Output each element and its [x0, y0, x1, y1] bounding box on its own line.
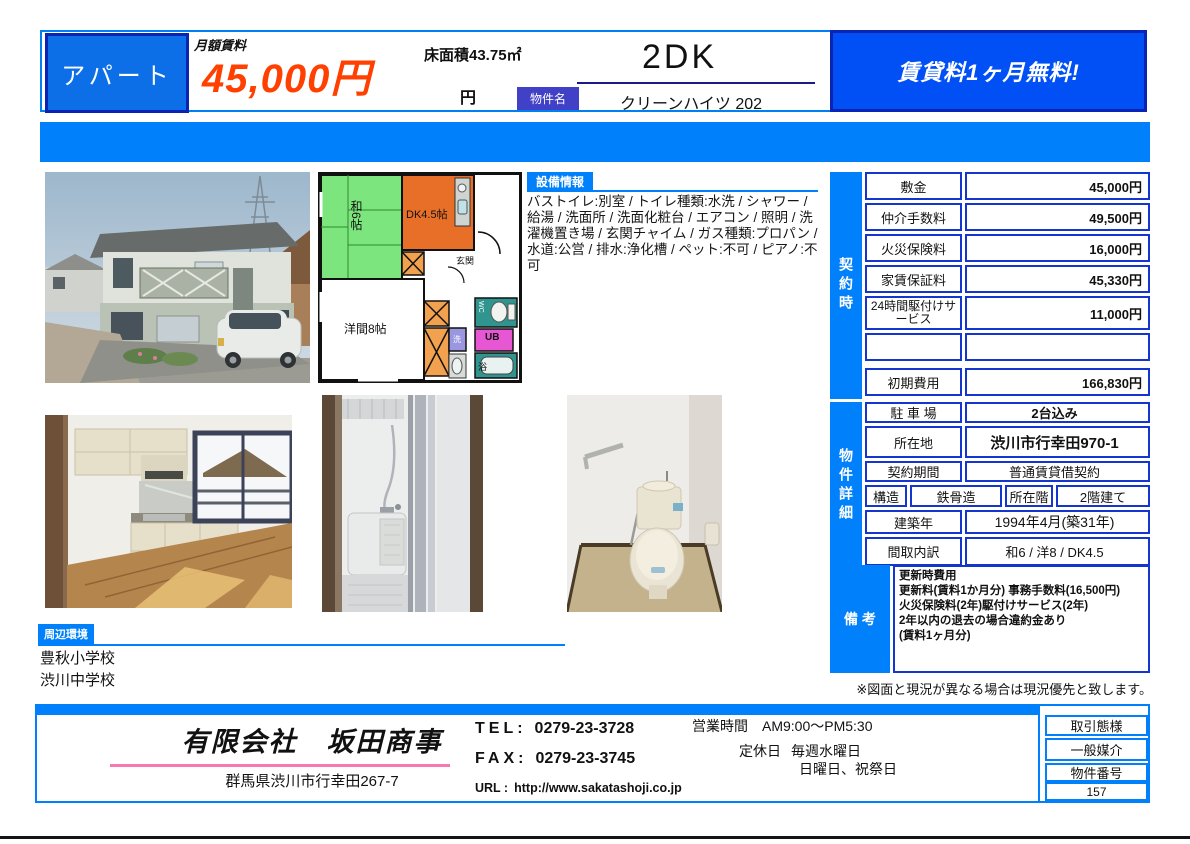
surroundings-tab: 周辺環境: [38, 624, 94, 644]
row-label: 初期費用: [865, 368, 962, 396]
table-row: 構造 鉄骨造 所在階 2階建て: [865, 485, 1150, 507]
bottom-rule: [0, 836, 1190, 839]
url-value: http://www.sakatashoji.co.jp: [514, 781, 682, 795]
row-value: 11,000円: [965, 296, 1150, 330]
header-underline: [577, 82, 815, 84]
url-label: URL :: [475, 781, 508, 795]
surroundings-tab-line: [38, 644, 565, 646]
room-label-western: 洋間8帖: [344, 320, 387, 337]
remarks-line: 2年以内の退去の場合違約金あり: [899, 614, 1144, 629]
blue-divider-bar: [40, 122, 1150, 162]
company-address: 群馬県渋川市行幸田267-7: [117, 770, 507, 791]
property-flyer: アパート 月額賃料 45,000円 床面積43.75㎡ 円 2DK 物件名 クリ…: [0, 0, 1190, 844]
property-number-label: 物件番号: [1045, 763, 1148, 782]
surroundings-list: 豊秋小学校 渋川中学校: [40, 648, 115, 692]
holiday-line2: 日曜日、祝祭日: [799, 759, 897, 779]
row-value: 49,500円: [965, 203, 1150, 231]
row-label: 家賃保証料: [865, 265, 962, 293]
row-value: [965, 333, 1150, 361]
row-value: 2階建て: [1056, 485, 1150, 507]
table-row: [865, 333, 1150, 361]
row-label: 仲介手数料: [865, 203, 962, 231]
table-row: 初期費用 166,830円: [865, 368, 1150, 396]
table-row: 24時間駆付けサービス 11,000円: [865, 296, 1150, 330]
floor-area: 床面積43.75㎡: [424, 44, 522, 65]
row-label: 建築年: [865, 510, 962, 534]
room-label-tatami: 和6帖: [348, 200, 365, 231]
property-type-badge: アパート: [45, 33, 189, 113]
room-label-laundry: 洗: [453, 334, 461, 345]
tel-value: 0279-23-3728: [535, 720, 635, 737]
property-number-value: 157: [1045, 782, 1148, 801]
deal-type-value: 一般媒介: [1045, 738, 1148, 761]
table-row: 所在地 渋川市行幸田970-1: [865, 426, 1150, 458]
room-label-wc: WC: [477, 301, 484, 313]
row-value: 45,330円: [965, 265, 1150, 293]
row-label: 所在階: [1005, 485, 1053, 507]
contract-side-label: 契約時: [830, 172, 862, 399]
footer-top-bar: [37, 706, 1038, 715]
holiday-line1: 定休日毎週水曜日: [739, 741, 861, 761]
footer: 有限会社 坂田商事 群馬県渋川市行幸田267-7 TEL:0279-23-372…: [35, 704, 1150, 803]
table-row: 仲介手数料 49,500円: [865, 203, 1150, 231]
fax-value: 0279-23-3745: [535, 750, 635, 767]
equipment-tab: 設備情報: [527, 172, 593, 191]
list-item: 豊秋小学校: [40, 648, 115, 670]
row-value: 和6 / 洋8 / DK4.5: [965, 537, 1150, 566]
row-value: 渋川市行幸田970-1: [965, 426, 1150, 458]
room-label-ub: UB: [485, 332, 499, 343]
table-row: 駐 車 場 2台込み: [865, 402, 1150, 423]
row-value: 鉄骨造: [910, 485, 1002, 507]
room-label-bath: 浴: [478, 360, 487, 373]
room-label-dk: DK4.5帖: [406, 206, 448, 222]
row-value: 45,000円: [965, 172, 1150, 200]
floor-plan: 和6帖 DK4.5帖 洋間8帖 玄関 WC UB 浴 洗: [318, 172, 522, 383]
hours-label: 営業時間: [692, 718, 748, 734]
building-photo: [45, 172, 310, 383]
yen-label: 円: [460, 84, 476, 108]
tel-label: TEL:: [475, 720, 527, 737]
promo-banner: 賃貸料1ヶ月無料!: [830, 30, 1147, 112]
company-underline: [110, 764, 450, 767]
remarks-side-label: 備 考: [830, 565, 890, 673]
table-row: 家賃保証料 45,330円: [865, 265, 1150, 293]
table-row: 火災保険料 16,000円: [865, 234, 1150, 262]
remarks-line: (賃料1ヶ月分): [899, 629, 1144, 644]
row-value: 1994年4月(築31年): [965, 510, 1150, 534]
remarks-line: 火災保険料(2年)駆付けサービス(2年): [899, 599, 1144, 614]
row-label: 敷金: [865, 172, 962, 200]
website-url: URL :http://www.sakatashoji.co.jp: [475, 781, 682, 795]
layout-type: 2DK: [642, 38, 717, 77]
row-label: 火災保険料: [865, 234, 962, 262]
row-value: 普通賃貸借契約: [965, 461, 1150, 482]
list-item: 渋川中学校: [40, 670, 115, 692]
row-label: [865, 333, 962, 361]
remarks-line: 更新料(賃料1か月分) 事務手数料(16,500円): [899, 584, 1144, 599]
company-name: 有限会社 坂田商事: [117, 720, 507, 759]
table-row: 間取内訳 和6 / 洋8 / DK4.5: [865, 537, 1150, 566]
building-photo-image: [45, 172, 310, 383]
row-label: 所在地: [865, 426, 962, 458]
remarks-line: 更新時費用: [899, 569, 1144, 584]
row-label: 間取内訳: [865, 537, 962, 566]
table-row: 契約期間 普通賃貸借契約: [865, 461, 1150, 482]
row-label: 構造: [865, 485, 907, 507]
property-name: クリーンハイツ 202: [620, 90, 762, 114]
details-side-label: 物件詳細: [830, 402, 862, 569]
details-table: 物件詳細 駐 車 場 2台込み 所在地 渋川市行幸田970-1 契約期間 普通賃…: [830, 402, 1150, 569]
disclaimer-note: ※図面と現況が異なる場合は現況優先と致します。: [856, 679, 1152, 698]
row-value: 166,830円: [965, 368, 1150, 396]
row-label: 駐 車 場: [865, 402, 962, 423]
table-row: 敷金 45,000円: [865, 172, 1150, 200]
equipment-text: バストイレ:別室 / トイレ種類:水洗 / シャワー / 給湯 / 洗面所 / …: [527, 194, 823, 274]
room-label-entrance: 玄関: [456, 254, 474, 267]
holiday-value1: 毎週水曜日: [791, 743, 861, 759]
header: アパート 月額賃料 45,000円 床面積43.75㎡ 円 2DK 物件名 クリ…: [40, 30, 1145, 112]
equipment-tab-line: [527, 190, 818, 192]
deal-type-label: 取引態様: [1045, 715, 1148, 736]
row-label: 24時間駆付けサービス: [865, 296, 962, 330]
row-label: 契約期間: [865, 461, 962, 482]
contract-table: 契約時 敷金 45,000円 仲介手数料 49,500円 火災保険料 16,00…: [830, 172, 1150, 399]
table-row: 建築年 1994年4月(築31年): [865, 510, 1150, 534]
bathroom-photo: [322, 395, 483, 612]
hours-value: AM9:00〜PM5:30: [762, 718, 873, 734]
business-hours: 営業時間AM9:00〜PM5:30: [692, 716, 873, 736]
fax-label: FAX:: [475, 750, 527, 767]
property-name-badge: 物件名: [517, 87, 579, 110]
fax-number: FAX:0279-23-3745: [475, 750, 635, 768]
toilet-photo: [567, 395, 722, 612]
kitchen-photo: [45, 415, 292, 608]
phone-number: TEL:0279-23-3728: [475, 720, 634, 738]
footer-divider: [1038, 706, 1040, 801]
remarks-body: 更新時費用 更新料(賃料1か月分) 事務手数料(16,500円) 火災保険料(2…: [893, 565, 1150, 673]
holiday-label: 定休日: [739, 743, 781, 759]
row-value: 2台込み: [965, 402, 1150, 423]
row-value: 16,000円: [965, 234, 1150, 262]
rent-value: 45,000円: [202, 46, 371, 104]
remarks-table: 備 考 更新時費用 更新料(賃料1か月分) 事務手数料(16,500円) 火災保…: [830, 565, 1150, 673]
